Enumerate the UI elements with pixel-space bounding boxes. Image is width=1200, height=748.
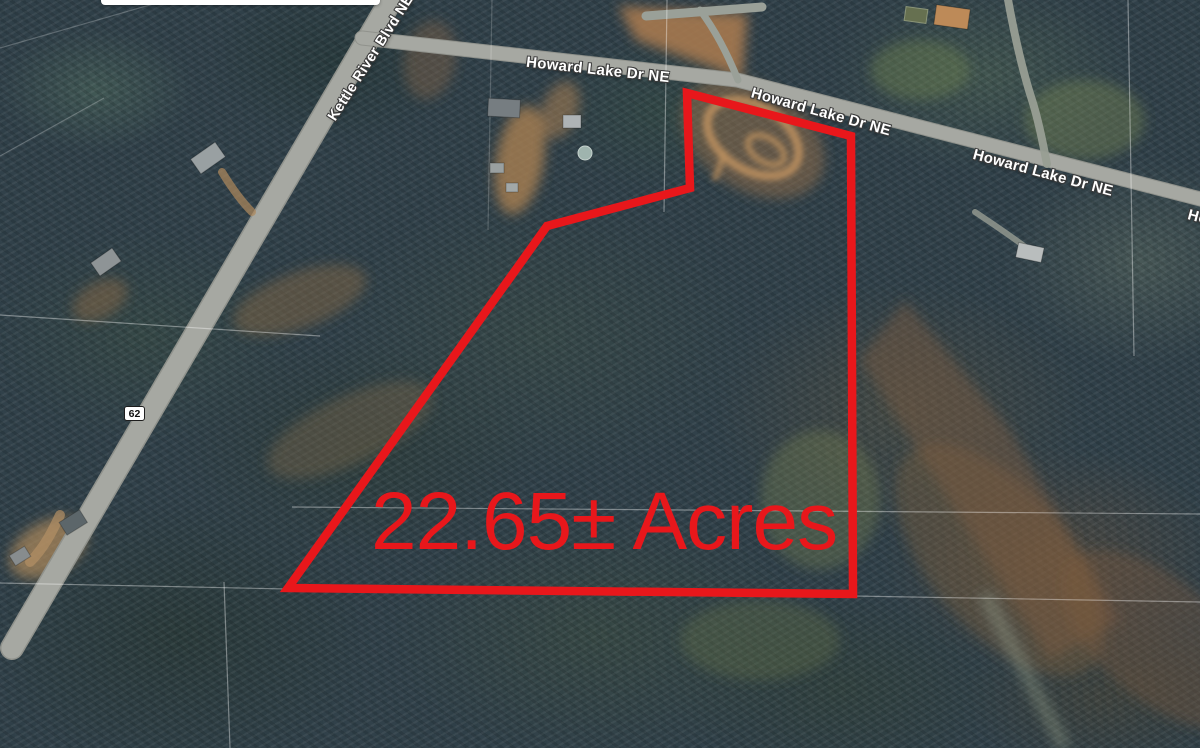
house (563, 115, 581, 128)
shed (490, 163, 504, 173)
house (934, 5, 970, 30)
map-drawing-layer (0, 0, 1200, 748)
pool (578, 146, 592, 160)
house (91, 248, 121, 276)
driveway-top-right (1007, 0, 1047, 164)
garden-plot (904, 7, 928, 24)
aerial-map[interactable]: Howard Lake Dr NE Howard Lake Dr NE Howa… (0, 0, 1200, 748)
search-box-edge[interactable] (101, 0, 380, 5)
acreage-label: 22.65± Acres (371, 481, 837, 563)
route-shield-62: 62 (124, 406, 145, 421)
house (488, 98, 521, 118)
house (1016, 242, 1045, 262)
shed (506, 183, 518, 192)
dirt-driveway-left (222, 172, 252, 212)
